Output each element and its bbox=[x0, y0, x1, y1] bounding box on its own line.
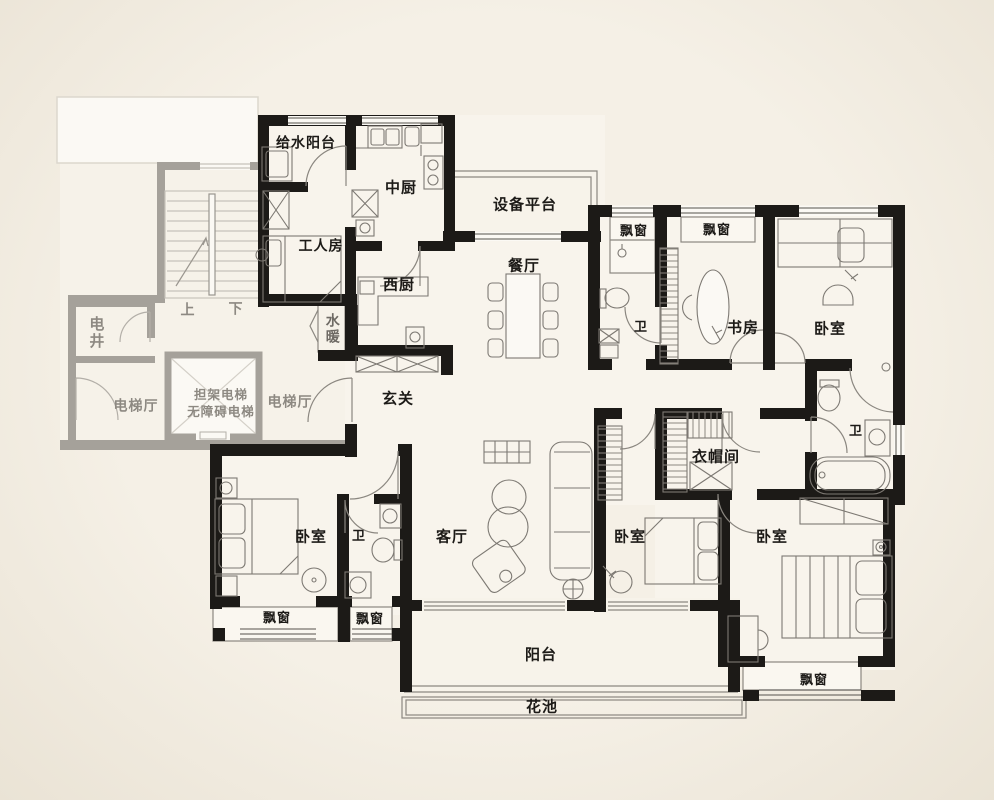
room-label-flower-bed: 花池 bbox=[526, 699, 558, 718]
room-label-foyer: 玄关 bbox=[382, 391, 414, 410]
bathroom-label-top: 卫 bbox=[634, 319, 648, 335]
stairs-up-label: 上 bbox=[181, 301, 196, 319]
room-label-worker-room: 工人房 bbox=[299, 237, 344, 255]
elevator-label-block: 担架电梯 无障碍电梯 bbox=[187, 387, 255, 421]
bathroom-label-bottom-left: 卫 bbox=[352, 528, 366, 544]
room-label-living-room: 客厅 bbox=[436, 529, 468, 548]
plumbing-shaft-label: 水暖 bbox=[323, 313, 341, 345]
room-label-bedroom-top-right: 卧室 bbox=[814, 321, 846, 340]
bay-window-label-2: 飘窗 bbox=[703, 222, 731, 238]
room-label-western-kitchen: 西厨 bbox=[383, 277, 415, 296]
bay-window-label-5: 飘窗 bbox=[800, 672, 828, 688]
elevator-hall-label-right: 电梯厅 bbox=[268, 393, 313, 411]
room-label-water-supply-balcony: 给水阳台 bbox=[276, 134, 336, 152]
bay-window-label-3: 飘窗 bbox=[263, 610, 291, 626]
electric-shaft-label: 电井 bbox=[86, 316, 105, 350]
bathroom-label-master: 卫 bbox=[849, 423, 863, 439]
elevator-hall-label-left: 电梯厅 bbox=[114, 397, 159, 415]
room-label-study: 书房 bbox=[727, 320, 759, 339]
room-label-bedroom-bottom-middle: 卧室 bbox=[614, 529, 646, 548]
room-label-balcony: 阳台 bbox=[525, 647, 557, 666]
room-label-dining-room: 餐厅 bbox=[508, 258, 540, 277]
stairs-down-label: 下 bbox=[229, 300, 244, 318]
bay-window-label-4: 飘窗 bbox=[356, 611, 384, 627]
bay-window-label-1: 飘窗 bbox=[620, 223, 648, 239]
accessible-elevator-label: 无障碍电梯 bbox=[187, 404, 255, 421]
room-label-cloakroom: 衣帽间 bbox=[692, 449, 740, 468]
room-label-bedroom-master: 卧室 bbox=[756, 529, 788, 548]
stretcher-elevator-label: 担架电梯 bbox=[187, 387, 255, 404]
room-label-chinese-kitchen: 中厨 bbox=[385, 180, 417, 199]
floor-plan-canvas: 给水阳台 中厨 设备平台 工人房 西厨 餐厅 书房 卧室 卧室 卧室 卧室 玄关… bbox=[0, 0, 994, 800]
room-label-bedroom-bottom-left: 卧室 bbox=[295, 529, 327, 548]
room-label-equipment-platform: 设备平台 bbox=[493, 197, 557, 216]
